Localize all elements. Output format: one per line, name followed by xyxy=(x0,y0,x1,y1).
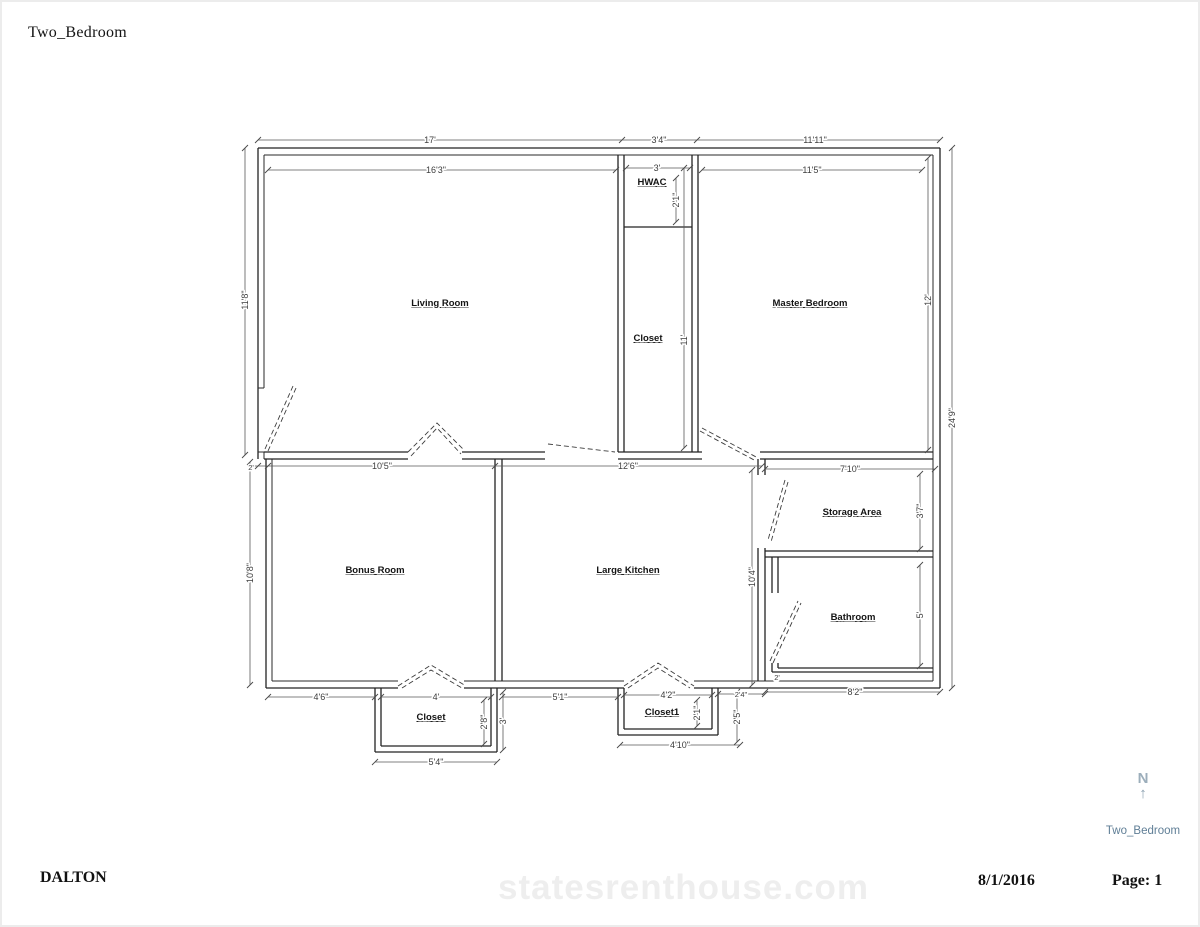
dim-bonus-closet-outer: 3' xyxy=(498,717,508,724)
dim-kitchen-width: 12'6" xyxy=(618,461,638,471)
kitchen-closet-door-swing xyxy=(624,663,694,688)
kitchen-right-divider xyxy=(758,459,765,681)
dim-top-master: 11'11" xyxy=(803,135,827,145)
living-kitchen-door-swing xyxy=(548,444,615,452)
document-page: Two_Bedroom 17' xyxy=(0,0,1200,927)
floor-plan-inner-walls xyxy=(258,155,933,681)
room-label-bonus-room: Bonus Room xyxy=(345,565,404,576)
dim-bonus-closet-offset: 4'6" xyxy=(314,692,329,702)
dim-bonus-closet-total: 5'4" xyxy=(429,757,444,767)
dim-kitchen-closet-width: 4'2" xyxy=(661,690,676,700)
living-bonus-door-swing xyxy=(408,423,464,456)
master-door-swing xyxy=(700,428,758,461)
dim-right-total: 24'9" xyxy=(947,408,957,428)
north-plan-label: Two_Bedroom xyxy=(1088,825,1198,837)
dim-kitchen-closet-right: 2'4" xyxy=(735,690,748,699)
room-label-storage-area: Storage Area xyxy=(823,507,882,518)
dim-bonus-closet-depth: 2'8" xyxy=(479,715,489,730)
dim-band-offset: 2' xyxy=(248,463,254,472)
north-arrow-icon: ↑ xyxy=(1088,786,1198,801)
bonus-kitchen-divider xyxy=(495,459,502,681)
footer-page-number: Page: 1 xyxy=(1112,872,1162,890)
dim-closet-height: 11' xyxy=(679,334,689,345)
room-label-kitchen-closet: Closet1 xyxy=(645,707,680,718)
room-label-bonus-closet: Closet xyxy=(416,712,446,723)
dimension-ticks xyxy=(242,137,955,765)
dim-hwac-depth: 2'1" xyxy=(671,193,681,208)
dim-top-total: 17' xyxy=(424,135,436,145)
room-label-large-kitchen: Large Kitchen xyxy=(596,565,660,576)
north-letter: N xyxy=(1088,772,1198,786)
dim-kitchen-closet-offset: 5'1" xyxy=(553,692,568,702)
middle-wall xyxy=(264,452,933,459)
dim-hwac-width: 3' xyxy=(654,163,661,173)
storage-door-swing xyxy=(768,480,788,542)
dim-bonus-height: 10'8" xyxy=(245,563,255,583)
room-label-master-bedroom: Master Bedroom xyxy=(773,298,848,309)
dim-living-height: 11'8" xyxy=(240,290,250,309)
dim-master-width: 11'5" xyxy=(802,165,821,175)
dim-kitchen-closet-outer: 2'5" xyxy=(732,710,742,725)
dimension-lines xyxy=(245,140,952,762)
dim-kitchen-closet-depth: 2'1" xyxy=(692,706,702,721)
dim-living-width: 16'3" xyxy=(426,165,446,175)
watermark: statesrenthouse.com xyxy=(498,868,869,908)
north-indicator: N ↑ Two_Bedroom xyxy=(1088,772,1198,837)
room-label-living-room: Living Room xyxy=(411,298,469,309)
bathroom-door-swing xyxy=(770,601,801,663)
room-label-closet: Closet xyxy=(633,333,663,344)
floor-plan-drawing: 17' 3'4" 11'11" 16'3" 3' 11'5" 2' 10'5" … xyxy=(0,0,1200,927)
dim-top-hwac: 3'4" xyxy=(652,135,667,145)
dim-bathroom-height: 5' xyxy=(915,611,925,618)
dim-kitchen-closet-total: 4'10" xyxy=(670,740,690,750)
closet-shaft-walls xyxy=(618,155,698,452)
room-label-hwac: HWAC xyxy=(637,177,666,188)
room-label-bathroom: Bathroom xyxy=(831,612,876,623)
bonus-closet-door-swing xyxy=(398,665,466,688)
entry-door-swing xyxy=(265,386,296,451)
dim-bathroom-width: 8'2" xyxy=(848,687,863,697)
floor-plan-outer-walls xyxy=(258,148,940,688)
dim-bonus-width: 10'5" xyxy=(372,461,392,471)
dim-bath-notch: 2' xyxy=(774,673,780,682)
footer-community-name: DALTON xyxy=(40,869,107,887)
dim-storage-height: 3'7" xyxy=(915,504,925,519)
dim-right-mid-height: 10'4" xyxy=(747,567,757,587)
dim-storage-width: 7'10" xyxy=(840,464,860,474)
dim-master-height: 12' xyxy=(923,294,933,306)
dim-bonus-closet-width: 4' xyxy=(433,692,440,702)
footer-date: 8/1/2016 xyxy=(978,872,1035,890)
